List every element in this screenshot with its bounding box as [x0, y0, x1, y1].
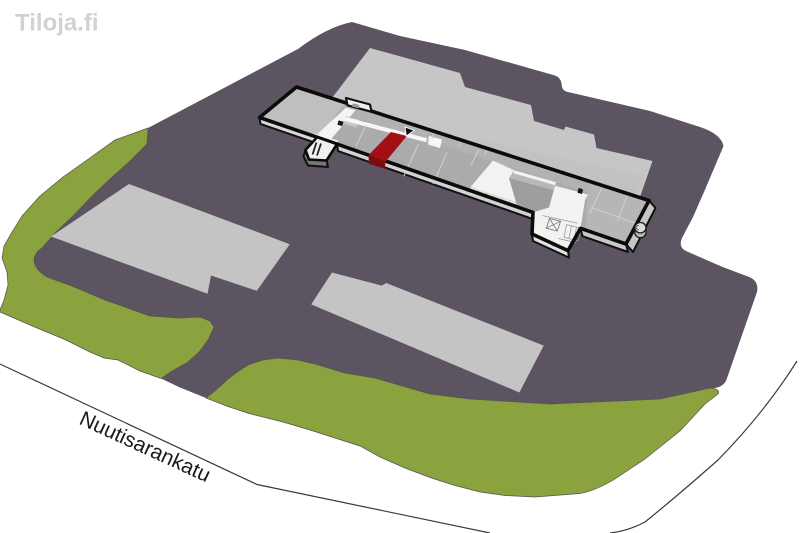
svg-text:Tiloja.fi: Tiloja.fi	[15, 10, 99, 37]
